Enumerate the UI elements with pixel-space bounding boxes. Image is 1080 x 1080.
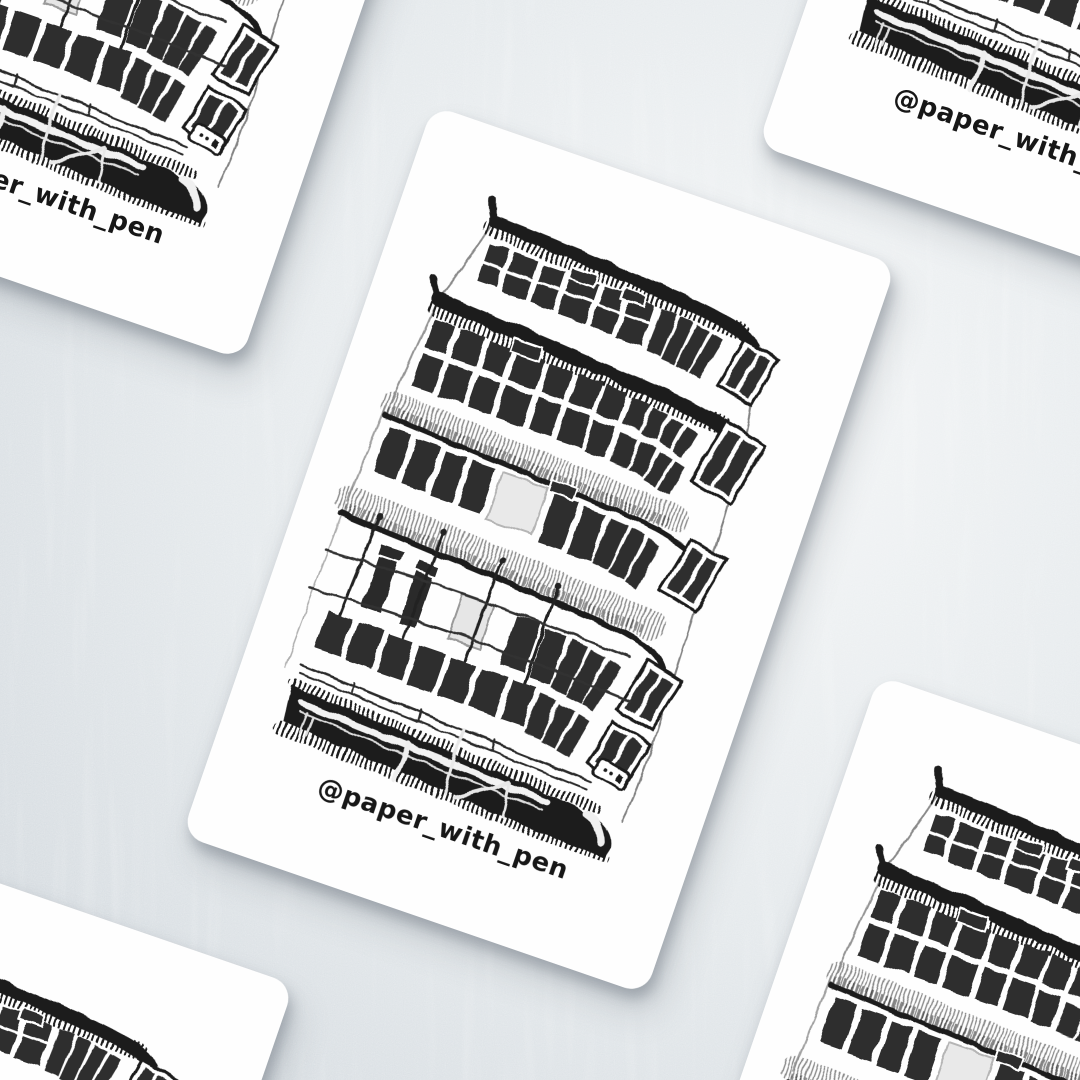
photo-backdrop: @paper_with_pen @paper_with_pen @paper_w… bbox=[0, 0, 1080, 1080]
